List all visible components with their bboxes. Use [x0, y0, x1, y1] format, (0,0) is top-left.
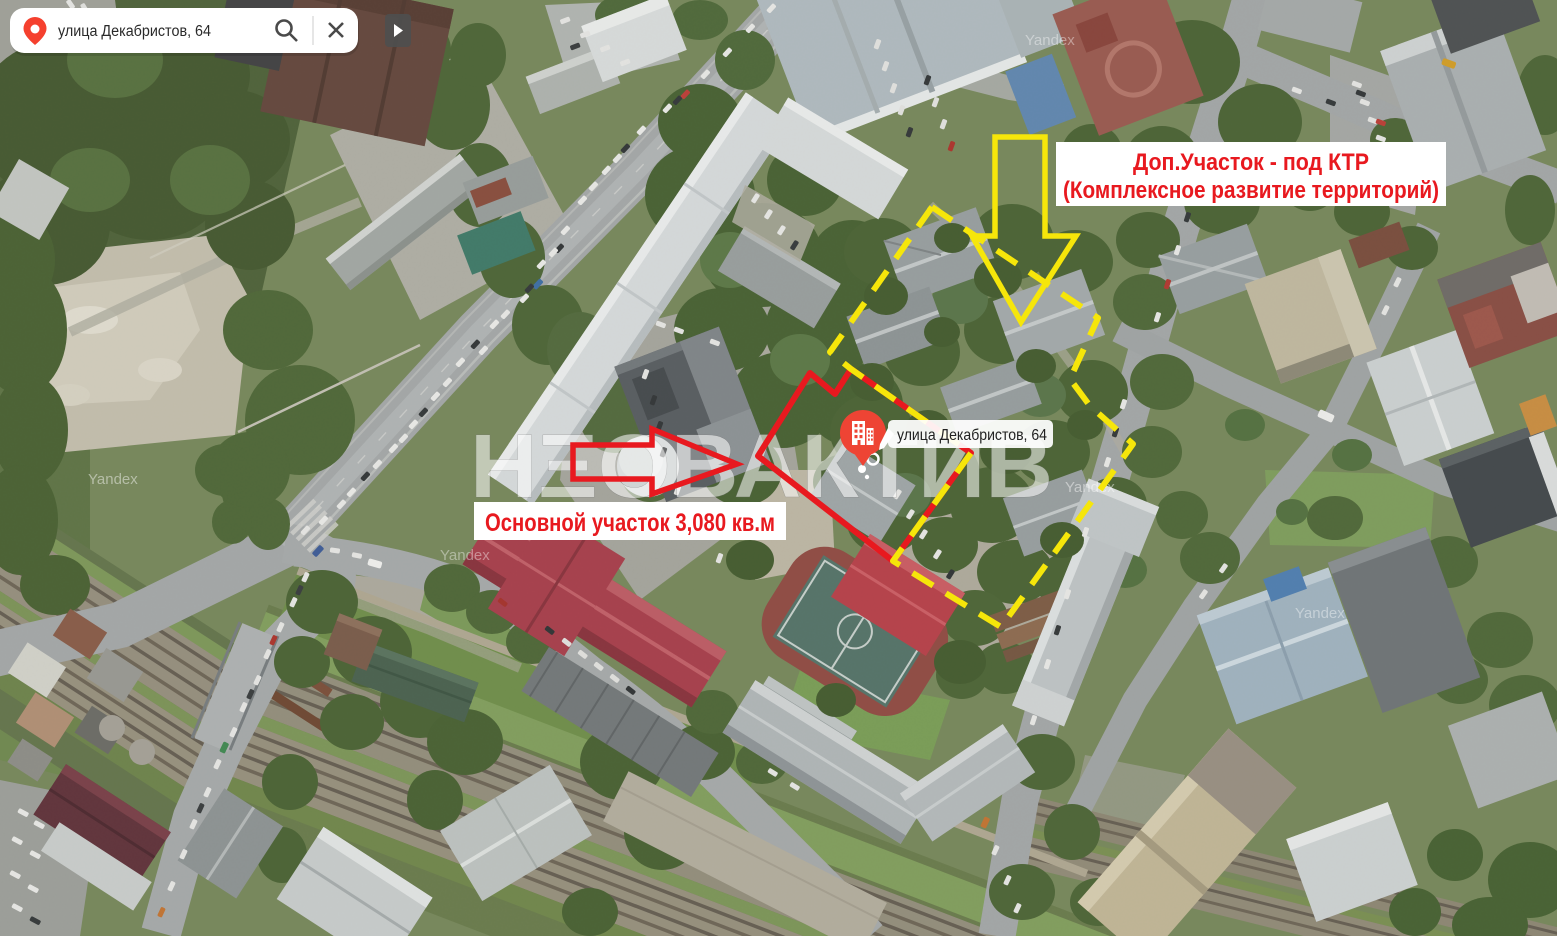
svg-text:Основной участок 3,080 кв.м: Основной участок 3,080 кв.м [485, 509, 775, 537]
svg-text:(Комплексное развитие территор: (Комплексное развитие территорий) [1063, 177, 1439, 204]
svg-text:улица Декабристов, 64: улица Декабристов, 64 [58, 23, 211, 40]
svg-text:улица Декабристов, 64: улица Декабристов, 64 [897, 427, 1047, 444]
svg-text:Yandex: Yandex [88, 471, 138, 488]
svg-text:Yandex: Yandex [1025, 32, 1075, 49]
svg-text:Yandex: Yandex [440, 547, 490, 564]
svg-text:Доп.Участок - под КТР: Доп.Участок - под КТР [1133, 149, 1369, 176]
svg-text:Yandex: Yandex [1295, 605, 1345, 622]
